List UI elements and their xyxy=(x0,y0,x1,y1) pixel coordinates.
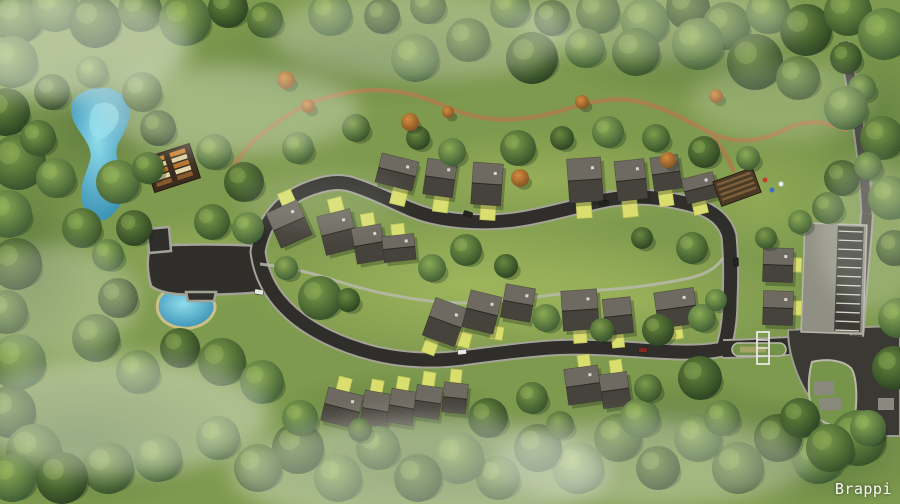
tree xyxy=(532,304,560,332)
tree xyxy=(274,256,298,280)
car xyxy=(638,347,647,352)
tree xyxy=(688,136,720,168)
tree-highlight xyxy=(25,125,39,139)
tree xyxy=(438,138,466,166)
tree-highlight xyxy=(473,403,489,419)
tree xyxy=(590,318,614,342)
car xyxy=(457,349,466,355)
tree-highlight xyxy=(646,318,659,331)
tree xyxy=(550,126,574,150)
utility-pad xyxy=(819,398,841,411)
tree xyxy=(736,146,760,170)
tree-highlight xyxy=(199,209,213,223)
tree xyxy=(450,234,482,266)
tree xyxy=(336,288,360,312)
tree-highlight xyxy=(865,15,886,36)
tree xyxy=(642,124,670,152)
tree xyxy=(755,227,777,249)
tree-highlight xyxy=(785,403,801,419)
roof-vent xyxy=(588,373,591,376)
tree-highlight xyxy=(229,167,245,183)
roof-south-slope xyxy=(441,397,466,414)
haze-patch xyxy=(690,60,870,140)
roof-north-slope xyxy=(561,289,598,311)
tree xyxy=(575,95,589,109)
roof-vent xyxy=(494,172,497,175)
tree xyxy=(116,210,152,246)
watermark-text: Brappi xyxy=(835,480,892,498)
tree-highlight xyxy=(684,362,702,380)
tree xyxy=(401,113,419,131)
roof-south-slope xyxy=(762,264,793,282)
roof-south-slope xyxy=(568,179,603,203)
tree-highlight xyxy=(67,213,83,229)
aerial-masterplan-render: Brappi xyxy=(0,0,900,504)
tree xyxy=(132,152,164,184)
parking-stripe xyxy=(835,330,859,331)
driveway-pad xyxy=(450,369,462,383)
tree-highlight xyxy=(596,120,609,133)
tree xyxy=(194,204,230,240)
house xyxy=(614,158,651,205)
tree-highlight xyxy=(505,135,519,149)
roof-vent xyxy=(586,297,589,300)
roof-vent xyxy=(447,168,450,171)
house xyxy=(762,247,796,286)
tree xyxy=(850,410,886,446)
utility-pad xyxy=(878,398,894,410)
playground-equipment xyxy=(763,178,768,183)
tree xyxy=(592,116,624,148)
tree-highlight xyxy=(709,405,723,419)
roof-north-slope xyxy=(443,382,468,399)
roof-south-slope xyxy=(616,178,648,201)
tree-highlight xyxy=(878,352,896,370)
tree xyxy=(418,254,446,282)
driveway-pad xyxy=(422,371,436,387)
tree-highlight xyxy=(520,386,533,399)
parking-stripe xyxy=(835,321,859,322)
site-plan-canvas xyxy=(0,0,900,504)
tree xyxy=(516,382,548,414)
entrance-plaza xyxy=(186,292,216,301)
roof-vent xyxy=(784,298,787,301)
tree xyxy=(442,106,454,118)
roof-north-slope xyxy=(614,159,646,182)
tree xyxy=(500,130,536,166)
car xyxy=(733,257,738,266)
tree xyxy=(806,424,854,472)
roof-north-slope xyxy=(472,162,503,185)
tree-highlight xyxy=(41,163,57,179)
tree xyxy=(36,158,76,198)
haze-patch xyxy=(240,170,400,230)
tree-highlight xyxy=(812,430,831,449)
roof-south-slope xyxy=(762,307,793,325)
roof-north-slope xyxy=(567,157,602,181)
house xyxy=(564,364,606,409)
haze-patch xyxy=(100,65,360,155)
tree-highlight xyxy=(834,46,847,59)
parking-stripe xyxy=(836,312,860,313)
tree-highlight xyxy=(625,403,641,419)
roof-vent xyxy=(682,296,685,299)
house xyxy=(441,382,471,419)
tree-highlight xyxy=(252,7,266,21)
roof-vent xyxy=(636,167,639,170)
roof-vent xyxy=(784,255,787,258)
haze-patch xyxy=(490,417,810,504)
roof-vent xyxy=(405,239,408,242)
tree xyxy=(634,374,662,402)
house xyxy=(470,162,506,210)
roof-vent xyxy=(373,232,376,235)
tree-highlight xyxy=(121,215,135,229)
house xyxy=(762,290,796,329)
tree-highlight xyxy=(692,140,705,153)
tree xyxy=(788,210,812,234)
tree-highlight xyxy=(680,236,693,249)
house xyxy=(567,157,607,207)
tree xyxy=(20,120,56,156)
tree xyxy=(642,314,674,346)
playground-equipment xyxy=(779,182,784,187)
roof-north-slope xyxy=(602,297,632,318)
tree-highlight xyxy=(136,156,149,169)
tree-highlight xyxy=(287,405,301,419)
tree-highlight xyxy=(454,238,467,251)
tree-highlight xyxy=(165,333,181,349)
tree-highlight xyxy=(204,344,223,363)
tree xyxy=(494,254,518,278)
tree xyxy=(631,227,653,249)
tree xyxy=(511,169,529,187)
tree xyxy=(660,152,676,168)
tree xyxy=(678,356,722,400)
utility-pad xyxy=(814,381,834,396)
tree xyxy=(62,208,102,248)
tree-highlight xyxy=(102,166,120,184)
tree xyxy=(705,289,727,311)
tree-highlight xyxy=(866,122,884,140)
house xyxy=(382,233,420,266)
roof-south-slope xyxy=(471,183,502,206)
tree-highlight xyxy=(246,366,264,384)
tree-highlight xyxy=(855,415,869,429)
roof-vent xyxy=(525,294,528,297)
car xyxy=(599,200,609,206)
playground-equipment xyxy=(770,188,775,193)
roof-north-slope xyxy=(763,290,794,308)
tree-highlight xyxy=(304,282,322,300)
roof-vent xyxy=(591,166,594,169)
tree-highlight xyxy=(236,216,249,229)
tree xyxy=(676,232,708,264)
tree xyxy=(298,276,342,320)
